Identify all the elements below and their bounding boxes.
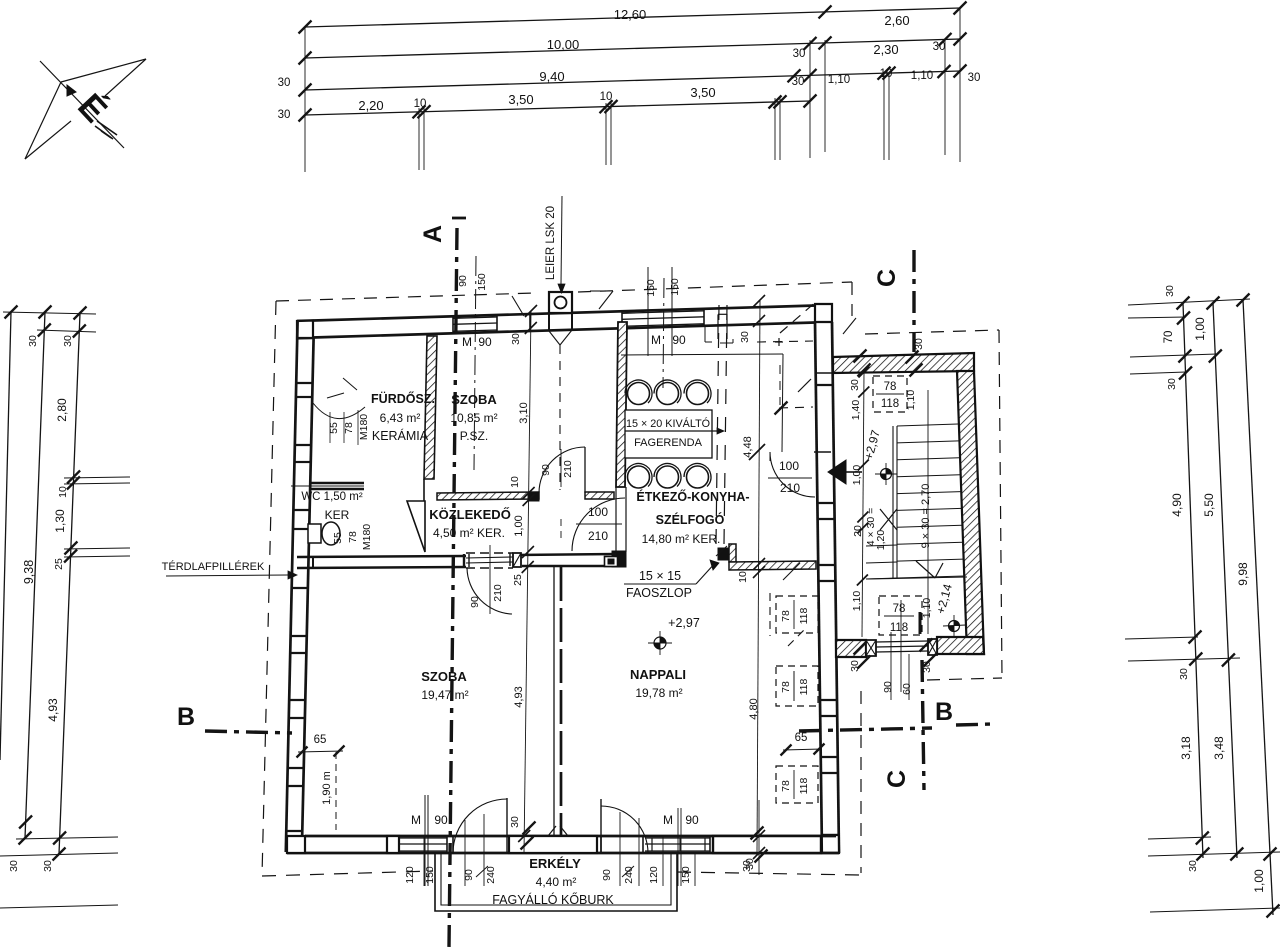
svg-text:90: 90 — [478, 335, 492, 349]
svg-text:20: 20 — [852, 525, 864, 537]
svg-text:M: M — [663, 813, 673, 827]
svg-text:ERKÉLY: ERKÉLY — [529, 856, 581, 871]
svg-text:M: M — [651, 333, 661, 347]
svg-text:6,43 m²: 6,43 m² — [380, 411, 421, 425]
svg-text:90: 90 — [457, 275, 469, 287]
svg-text:78: 78 — [780, 610, 792, 622]
svg-text:10: 10 — [509, 476, 521, 488]
svg-text:118: 118 — [798, 777, 810, 794]
svg-text:B: B — [935, 698, 953, 726]
svg-text:B: B — [177, 703, 195, 731]
svg-text:C: C — [883, 770, 911, 788]
svg-text:9,40: 9,40 — [539, 69, 564, 84]
svg-text:M180: M180 — [358, 414, 370, 440]
svg-text:12,60: 12,60 — [614, 7, 647, 22]
svg-text:15 × 20 KIVÁLTÓ: 15 × 20 KIVÁLTÓ — [626, 417, 710, 430]
svg-text:78: 78 — [343, 422, 355, 434]
svg-text:30: 30 — [510, 333, 522, 345]
svg-text:30: 30 — [933, 41, 946, 53]
svg-text:78: 78 — [780, 681, 792, 693]
svg-text:118: 118 — [798, 607, 810, 624]
svg-text:78: 78 — [780, 780, 792, 792]
svg-text:30: 30 — [1166, 378, 1178, 390]
svg-text:1,10: 1,10 — [905, 390, 917, 411]
svg-text:+2,97: +2,97 — [668, 616, 700, 630]
svg-text:15 × 15: 15 × 15 — [639, 569, 681, 583]
svg-text:30: 30 — [278, 77, 291, 89]
svg-text:1,20: 1,20 — [875, 530, 887, 551]
svg-text:1,10: 1,10 — [851, 591, 863, 612]
svg-text:ÉTKEZŐ-KONYHA-: ÉTKEZŐ-KONYHA- — [636, 489, 749, 504]
svg-text:2,80: 2,80 — [55, 398, 69, 422]
svg-text:1,30: 1,30 — [53, 509, 67, 533]
svg-text:FAGYÁLLÓ KŐBURK: FAGYÁLLÓ KŐBURK — [492, 892, 614, 907]
svg-text:30: 30 — [27, 335, 39, 347]
svg-text:70: 70 — [1163, 331, 1175, 344]
svg-text:NAPPALI: NAPPALI — [630, 667, 686, 682]
svg-text:65: 65 — [795, 732, 808, 744]
svg-text:9,98: 9,98 — [1236, 562, 1250, 586]
svg-text:10: 10 — [737, 571, 749, 583]
svg-text:10: 10 — [57, 486, 69, 498]
svg-text:1,10: 1,10 — [921, 598, 933, 619]
svg-text:4,93: 4,93 — [513, 686, 525, 707]
svg-text:10: 10 — [880, 68, 893, 80]
svg-text:A: A — [419, 225, 447, 243]
svg-text:1,00: 1,00 — [1193, 317, 1207, 341]
svg-text:30: 30 — [8, 860, 20, 872]
svg-text:30: 30 — [793, 48, 806, 60]
svg-text:30: 30 — [913, 338, 925, 350]
svg-text:90: 90 — [685, 813, 699, 827]
svg-text:19,78 m²: 19,78 m² — [635, 686, 682, 700]
svg-text:30: 30 — [739, 331, 751, 343]
svg-text:2,20: 2,20 — [358, 98, 383, 113]
svg-text:30: 30 — [1164, 285, 1176, 297]
svg-text:14,80 m² KER.: 14,80 m² KER. — [642, 532, 721, 546]
svg-text:FÜRDŐSZ.: FÜRDŐSZ. — [371, 391, 435, 406]
svg-text:3,50: 3,50 — [690, 85, 715, 100]
svg-text:1,00: 1,00 — [1252, 869, 1266, 893]
svg-text:150: 150 — [424, 866, 436, 884]
svg-text:10,85 m²: 10,85 m² — [450, 411, 497, 425]
svg-text:30: 30 — [62, 335, 74, 347]
svg-text:90: 90 — [469, 596, 481, 608]
svg-text:M180: M180 — [361, 524, 373, 550]
svg-text:SZOBA: SZOBA — [451, 392, 497, 407]
svg-text:9 × 30 = 2,70: 9 × 30 = 2,70 — [920, 484, 932, 549]
svg-text:240: 240 — [623, 866, 635, 884]
svg-text:65: 65 — [314, 734, 327, 746]
svg-text:90: 90 — [672, 333, 686, 347]
svg-text:90: 90 — [434, 813, 448, 827]
svg-text:90: 90 — [540, 464, 552, 476]
svg-text:SZOBA: SZOBA — [421, 669, 467, 684]
svg-text:M: M — [462, 335, 472, 349]
svg-text:150: 150 — [476, 273, 488, 291]
svg-text:210: 210 — [780, 481, 800, 495]
svg-text:3,50: 3,50 — [508, 92, 533, 107]
svg-text:25: 25 — [53, 558, 65, 570]
svg-text:FAOSZLOP: FAOSZLOP — [626, 586, 692, 600]
svg-text:3,10: 3,10 — [518, 402, 530, 423]
svg-text:C: C — [873, 269, 901, 287]
svg-text:TÉRDLAFPILLÉREK: TÉRDLAFPILLÉREK — [162, 560, 265, 573]
svg-text:118: 118 — [798, 678, 810, 695]
svg-text:4,93: 4,93 — [46, 698, 60, 722]
svg-text:FAGERENDA: FAGERENDA — [634, 437, 703, 449]
svg-text:78: 78 — [893, 603, 906, 615]
svg-text:1,40: 1,40 — [850, 400, 862, 421]
svg-text:2,60: 2,60 — [884, 13, 909, 28]
svg-text:9,38: 9,38 — [22, 560, 36, 584]
svg-text:210: 210 — [492, 584, 504, 602]
svg-text:30: 30 — [1187, 860, 1199, 872]
svg-text:1,00: 1,00 — [851, 465, 863, 486]
svg-text:1,10: 1,10 — [828, 74, 850, 86]
svg-text:150: 150 — [680, 866, 692, 884]
svg-text:240: 240 — [485, 866, 497, 884]
svg-text:150: 150 — [645, 279, 657, 297]
svg-text:30: 30 — [792, 76, 805, 88]
svg-text:120: 120 — [648, 866, 660, 884]
svg-text:78: 78 — [347, 531, 359, 543]
svg-text:KÖZLEKEDŐ: KÖZLEKEDŐ — [429, 507, 511, 522]
svg-text:4,50 m² KER.: 4,50 m² KER. — [433, 526, 505, 540]
svg-text:KERÁMIA: KERÁMIA — [372, 428, 429, 443]
svg-text:120: 120 — [404, 866, 416, 884]
svg-text:90: 90 — [601, 869, 613, 881]
svg-text:5,50: 5,50 — [1202, 493, 1216, 517]
svg-text:3,18: 3,18 — [1179, 736, 1193, 760]
svg-text:60: 60 — [901, 683, 913, 695]
svg-text:1,00: 1,00 — [513, 515, 525, 536]
svg-text:10: 10 — [600, 91, 613, 103]
svg-text:78: 78 — [884, 381, 897, 393]
svg-text:3,48: 3,48 — [1212, 736, 1226, 760]
svg-text:2,30: 2,30 — [873, 42, 898, 57]
svg-text:KER: KER — [325, 508, 350, 522]
svg-text:4,40 m²: 4,40 m² — [536, 875, 577, 889]
svg-text:30: 30 — [509, 816, 521, 828]
svg-text:100: 100 — [588, 505, 608, 519]
svg-text:1,10: 1,10 — [911, 70, 933, 82]
svg-text:1,90 m: 1,90 m — [321, 771, 333, 805]
svg-text:SZÉLFOGÓ: SZÉLFOGÓ — [656, 512, 725, 527]
svg-text:118: 118 — [890, 622, 908, 634]
svg-text:210: 210 — [588, 529, 608, 543]
svg-text:30: 30 — [278, 109, 291, 121]
svg-text:30: 30 — [42, 860, 54, 872]
svg-text:4,90: 4,90 — [1170, 493, 1184, 517]
svg-text:30: 30 — [1178, 668, 1190, 680]
svg-text:4,48: 4,48 — [742, 436, 754, 457]
svg-text:118: 118 — [881, 398, 899, 410]
svg-text:P.SZ.: P.SZ. — [460, 429, 488, 443]
svg-text:19,47 m²: 19,47 m² — [421, 688, 468, 702]
svg-text:M: M — [411, 813, 421, 827]
svg-text:30: 30 — [741, 860, 753, 872]
svg-text:150: 150 — [669, 278, 681, 296]
svg-text:WC 1,50 m²: WC 1,50 m² — [301, 491, 363, 503]
svg-text:55: 55 — [332, 532, 344, 544]
svg-text:25: 25 — [512, 574, 524, 586]
svg-text:30: 30 — [968, 72, 981, 84]
svg-text:30: 30 — [849, 379, 861, 391]
svg-text:90: 90 — [882, 681, 894, 693]
svg-text:LEIER LSK 20: LEIER LSK 20 — [545, 206, 557, 280]
svg-text:4,80: 4,80 — [748, 698, 760, 719]
svg-text:10,00: 10,00 — [547, 37, 580, 52]
svg-text:100: 100 — [779, 459, 799, 473]
svg-text:210: 210 — [562, 460, 574, 478]
svg-text:10: 10 — [414, 98, 427, 110]
